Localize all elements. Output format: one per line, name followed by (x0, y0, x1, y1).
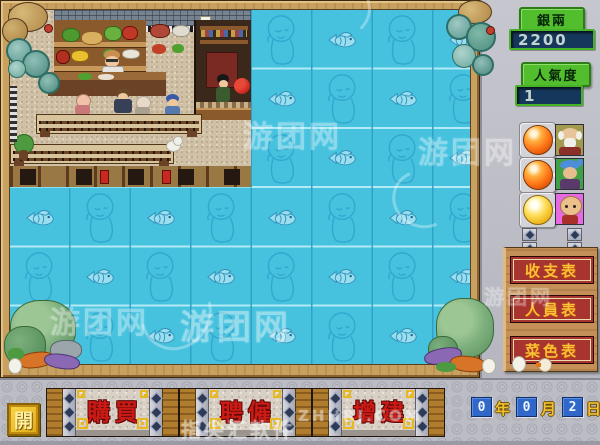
monk-head-tile-icon[interactable] (192, 188, 253, 247)
metal-strip (415, 389, 428, 436)
customer-character (164, 94, 181, 116)
fish-tile-icon[interactable] (252, 188, 313, 247)
day-value: 2 (562, 397, 583, 417)
metal-strip (149, 389, 162, 436)
greens (436, 362, 456, 372)
front-wall (10, 166, 252, 188)
income-report-button[interactable]: 收支表 (510, 256, 594, 284)
wood-post (313, 389, 329, 436)
customer-character (114, 88, 132, 114)
fish-tile-icon[interactable] (252, 69, 313, 128)
metal-strip (282, 389, 295, 436)
egg (8, 358, 22, 374)
monk-head-tile-icon[interactable] (71, 188, 132, 247)
red-flowers (234, 78, 250, 94)
wine-room (194, 20, 252, 120)
wood-post (428, 389, 444, 436)
red-veg-item (122, 26, 138, 40)
staff-slot-button-2[interactable] (519, 157, 556, 193)
yellow-sphere-icon (523, 195, 553, 225)
fish-tile-icon[interactable] (373, 69, 434, 128)
dining-counter (10, 144, 174, 164)
wood-post (162, 389, 178, 436)
year-unit-label: 年 (495, 398, 510, 419)
monk-head-tile-icon[interactable] (313, 69, 374, 128)
fish-tile-icon[interactable] (131, 188, 192, 247)
wood-post (295, 389, 311, 436)
gear-decoration-top-right (438, 0, 506, 92)
monk-head-tile-icon[interactable] (252, 129, 313, 188)
wood-post (180, 389, 196, 436)
orange-sphere-icon (523, 125, 553, 155)
fish-tile-icon[interactable] (192, 247, 253, 306)
popularity-value: 1 (515, 85, 583, 106)
plate-item (122, 49, 140, 59)
fish-tile-icon[interactable] (434, 129, 472, 188)
stepper-up-right[interactable] (567, 228, 582, 241)
month-unit-label: 月 (541, 398, 556, 419)
hostess-character (214, 74, 232, 104)
cabbage-item (104, 26, 122, 41)
prep-shelf (146, 20, 200, 64)
fish-tile-icon[interactable] (373, 188, 434, 247)
open-shop-button[interactable]: 開 (7, 403, 40, 436)
fish-tile-icon[interactable] (131, 307, 192, 365)
red-lantern (100, 170, 109, 184)
corn-item (71, 50, 89, 62)
monk-head-tile-icon[interactable] (252, 10, 313, 69)
staff-report-button[interactable]: 人員表 (510, 295, 594, 323)
fish-tile-icon[interactable] (10, 188, 71, 247)
popularity-label: 人氣度 (521, 62, 591, 87)
fish-tile-icon[interactable] (313, 129, 374, 188)
blue-hair-portrait[interactable] (555, 158, 584, 190)
bald-portrait[interactable] (555, 193, 584, 225)
hire-button[interactable]: 聘僱 (179, 388, 312, 437)
monk-head-tile-icon[interactable] (131, 247, 192, 306)
monk-head-tile-icon[interactable] (192, 307, 253, 365)
metal-strip (329, 389, 342, 436)
game-screen: 銀兩 2200 人氣度 1 (0, 0, 600, 445)
monk-head-tile-icon[interactable] (373, 10, 434, 69)
egg (512, 356, 526, 372)
wood-post (47, 389, 63, 436)
staff-slot-button-3[interactable] (519, 192, 556, 228)
red-lantern (162, 170, 171, 184)
greens-item (62, 28, 80, 42)
day-unit-label: 日 (586, 398, 600, 419)
chick-decoration (536, 356, 552, 372)
monk-head-tile-icon[interactable] (434, 188, 472, 247)
stepper-up-left[interactable] (522, 228, 537, 241)
dining-counter (36, 114, 202, 134)
fish-tile-icon[interactable] (313, 10, 374, 69)
buy-button[interactable]: 購買 (46, 388, 179, 437)
bush-decoration-bottom-left (4, 296, 88, 374)
kitchen-counter (48, 72, 166, 96)
customer-character (134, 96, 151, 116)
fish-tile-icon[interactable] (313, 247, 374, 306)
elder-portrait[interactable] (555, 124, 584, 156)
cat (166, 136, 181, 151)
gear-decoration-top-left (0, 0, 62, 98)
monk-head-tile-icon[interactable] (313, 188, 374, 247)
metal-strip (63, 389, 76, 436)
monk-head-tile-icon[interactable] (252, 247, 313, 306)
egg (482, 358, 496, 374)
fish-tile-icon[interactable] (252, 307, 313, 365)
staff-slot-button-1[interactable] (519, 122, 556, 158)
customer-character (74, 94, 91, 116)
monk-head-tile-icon[interactable] (373, 129, 434, 188)
bush-decoration-bottom-right (424, 296, 512, 376)
expand-button[interactable]: 增建 (312, 388, 445, 437)
monk-head-tile-icon[interactable] (313, 307, 374, 365)
money-value: 2200 (509, 29, 595, 50)
year-value: 0 (471, 397, 492, 417)
basket-item (81, 31, 103, 45)
metal-strip (196, 389, 209, 436)
orange-sphere-icon (523, 160, 553, 190)
month-value: 0 (516, 397, 537, 417)
